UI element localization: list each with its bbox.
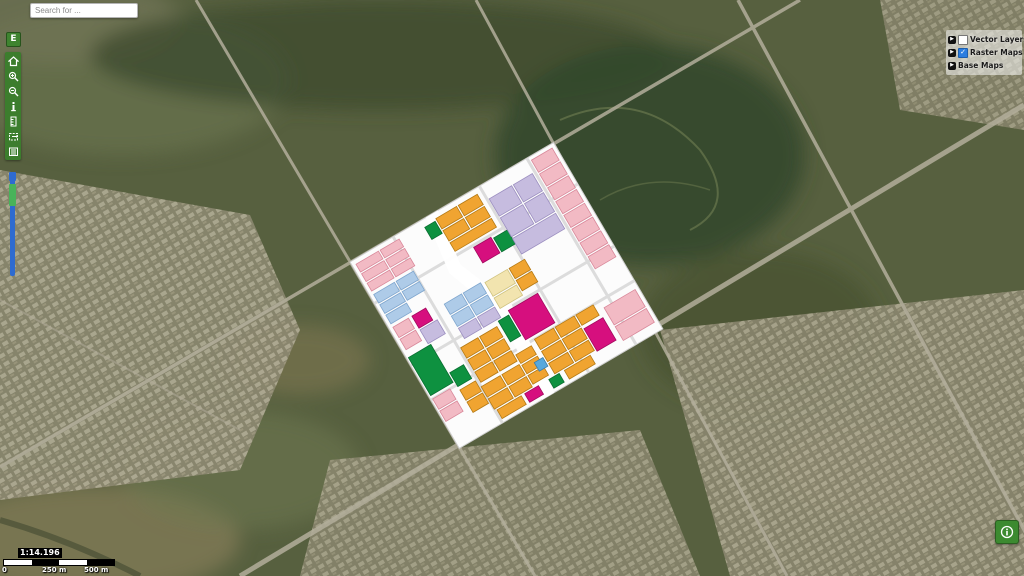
scale-ratio-text: 1:14.196: [18, 548, 62, 558]
legend-button[interactable]: [6, 144, 20, 158]
scale-bar-segment: [32, 560, 60, 565]
scale-label-mid: 250 m: [42, 566, 66, 574]
map-canvas[interactable]: [0, 0, 1024, 576]
info-button[interactable]: [995, 520, 1019, 544]
zoom-in-icon: [8, 71, 19, 82]
zoom-extent-icon: [8, 131, 19, 142]
map-toolbar: [5, 52, 21, 160]
zoom-in-button[interactable]: [6, 69, 20, 83]
legend-icon: [8, 146, 19, 157]
info-tool-button[interactable]: [6, 99, 20, 113]
scale-label-end: 500 m: [84, 566, 108, 574]
layer-tree-panel: ▶ Vector Layers ▶ ✓ Raster Maps ▶ Base M…: [946, 30, 1022, 75]
layer-group-label: Base Maps: [958, 61, 1003, 70]
measure-icon: [8, 116, 19, 127]
scale-bar-segment: [87, 560, 115, 565]
expand-arrow-icon[interactable]: ▶: [948, 62, 956, 70]
layer-group-label: Vector Layers: [970, 35, 1024, 44]
layer-group-vector-layers: ▶ Vector Layers: [948, 33, 1020, 46]
layer-group-base-maps: ▶ Base Maps: [948, 59, 1020, 72]
home-icon: [8, 56, 19, 67]
zoom-slider[interactable]: [10, 172, 15, 276]
home-button[interactable]: [6, 54, 20, 68]
scale-bar-segment: [59, 560, 87, 565]
measure-button[interactable]: [6, 114, 20, 128]
expand-arrow-icon[interactable]: ▶: [948, 49, 956, 57]
zoom-out-button[interactable]: [6, 84, 20, 98]
zoom-slider-handle[interactable]: [9, 184, 16, 206]
scale-bar: [3, 559, 115, 566]
zoom-slider-cap: [9, 172, 16, 181]
zoom-extent-button[interactable]: [6, 129, 20, 143]
expand-arrow-icon[interactable]: ▶: [948, 36, 956, 44]
vector-layers-checkbox[interactable]: [958, 35, 968, 45]
layer-group-raster-maps: ▶ ✓ Raster Maps: [948, 46, 1020, 59]
scale-bar-segment: [4, 560, 32, 565]
info-circle-icon: [1000, 525, 1014, 539]
layer-group-label: Raster Maps: [970, 48, 1023, 57]
satellite-basemap: [0, 0, 1024, 576]
search-input[interactable]: [30, 3, 138, 18]
raster-maps-checkbox[interactable]: ✓: [958, 48, 968, 58]
zoom-out-icon: [8, 86, 19, 97]
scale-label-zero: 0: [2, 566, 7, 574]
info-icon: [8, 101, 19, 112]
expand-button[interactable]: E: [6, 32, 21, 47]
